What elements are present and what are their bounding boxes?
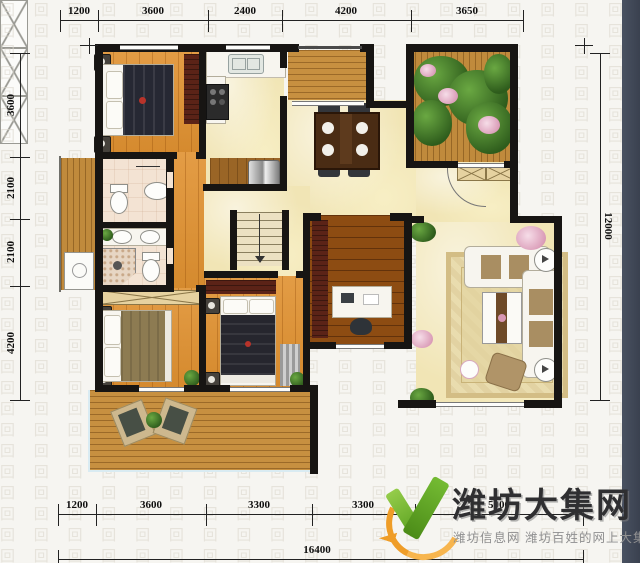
ext-tick bbox=[584, 38, 585, 54]
plate bbox=[356, 144, 368, 156]
dim-label: 2400 bbox=[234, 5, 256, 17]
kitchen-window bbox=[226, 45, 270, 50]
coffee-table-flower bbox=[498, 314, 506, 322]
bedroom3-wardrobe bbox=[206, 280, 276, 294]
wall bbox=[280, 96, 287, 190]
dining-table bbox=[314, 112, 380, 170]
dim-label: 1200 bbox=[66, 499, 88, 511]
corridor-floor bbox=[172, 152, 206, 292]
bedroom2-plant bbox=[184, 370, 200, 386]
terrace-flowers bbox=[420, 64, 436, 77]
bedroom3-blanket-accent bbox=[245, 341, 251, 347]
laundry-balcony-rail bbox=[59, 156, 61, 292]
study-window bbox=[336, 344, 384, 349]
dim-label-total: 16400 bbox=[303, 544, 331, 556]
living-corner-flowers bbox=[516, 226, 546, 250]
dim-label: 3300 bbox=[352, 499, 374, 511]
laptop bbox=[341, 293, 354, 303]
balcony-door bbox=[292, 101, 364, 106]
dim-line-left bbox=[20, 53, 21, 400]
chair-cushion bbox=[162, 405, 189, 434]
dim-tick bbox=[411, 10, 412, 32]
dim-tick bbox=[10, 286, 30, 287]
dim-line-top bbox=[60, 20, 523, 21]
dim-tick bbox=[96, 504, 97, 526]
table-runner bbox=[340, 114, 352, 164]
dim-tick bbox=[58, 550, 59, 563]
bedroom2-pillow bbox=[104, 315, 121, 345]
wall bbox=[303, 213, 321, 221]
study-wardrobe bbox=[312, 220, 328, 338]
washing-machine bbox=[64, 252, 94, 290]
coffee-table bbox=[482, 292, 522, 344]
logo-tagline: 潍坊信息网 潍坊百姓的网上大集 bbox=[453, 527, 640, 546]
watermark-logo: 潍坊大集网 潍坊信息网 潍坊百姓的网上大集 bbox=[384, 470, 640, 562]
wall bbox=[203, 184, 287, 191]
bedroom3-pillow bbox=[249, 299, 274, 314]
wall bbox=[510, 161, 518, 223]
bedroom3-nightstand-top bbox=[204, 298, 220, 314]
bedroom3-sheet bbox=[221, 375, 275, 383]
bedroom2-blanket bbox=[121, 311, 165, 381]
dim-tick bbox=[10, 157, 30, 158]
dim-label: 4200 bbox=[335, 5, 357, 17]
deck-rail-left bbox=[88, 390, 90, 472]
bathroom1-door-gap bbox=[167, 172, 173, 188]
dim-tick bbox=[206, 504, 207, 526]
chair-cushion bbox=[118, 408, 146, 438]
dim-tick bbox=[60, 10, 61, 32]
terrace-plant bbox=[412, 100, 452, 146]
burner bbox=[210, 99, 216, 105]
wall bbox=[410, 216, 424, 223]
dim-label: 1200 bbox=[68, 5, 90, 17]
dim-label: 4200 bbox=[5, 332, 17, 354]
dim-tick bbox=[58, 504, 59, 526]
top-balcony-floor bbox=[288, 50, 370, 104]
wall bbox=[310, 390, 318, 474]
bay-plant bbox=[410, 222, 436, 242]
sofa-cushion bbox=[529, 321, 553, 347]
bedroom1-pillow bbox=[106, 71, 123, 99]
plate bbox=[322, 122, 334, 134]
dim-tick bbox=[10, 219, 30, 220]
ext-tick bbox=[89, 38, 90, 54]
wall bbox=[510, 44, 518, 168]
dim-label: 3600 bbox=[5, 94, 17, 116]
wall bbox=[204, 271, 278, 278]
wall bbox=[524, 400, 562, 408]
ext-tick bbox=[575, 45, 593, 46]
bathroom1-door-arrow bbox=[136, 166, 160, 167]
dim-tick bbox=[208, 10, 209, 32]
wall bbox=[390, 213, 412, 221]
plate bbox=[356, 122, 368, 134]
bedroom3-bed bbox=[220, 296, 276, 386]
wall bbox=[554, 216, 562, 408]
burner bbox=[219, 99, 225, 105]
washer-door bbox=[72, 263, 87, 278]
burner bbox=[219, 89, 225, 95]
kitchen-sink bbox=[228, 54, 264, 74]
wall bbox=[308, 342, 336, 349]
stair-arrow-line bbox=[259, 214, 260, 258]
dim-tick bbox=[10, 400, 30, 401]
deck-plant bbox=[146, 412, 162, 428]
dim-tick bbox=[590, 400, 610, 401]
bedroom3-window bbox=[230, 387, 290, 392]
living-window bbox=[436, 402, 524, 407]
terrace-flowers bbox=[438, 88, 458, 104]
bedroom1-blanket-accent bbox=[139, 97, 146, 104]
burner bbox=[210, 89, 216, 95]
wall bbox=[406, 161, 458, 168]
wall bbox=[230, 210, 237, 270]
living-small-table bbox=[460, 360, 479, 379]
shower-drain bbox=[113, 261, 122, 270]
dim-label: 3650 bbox=[456, 5, 478, 17]
papers bbox=[363, 294, 379, 305]
wall bbox=[366, 44, 374, 108]
dim-tick bbox=[312, 504, 313, 526]
dim-label: 2100 bbox=[5, 177, 17, 199]
dim-tick bbox=[523, 10, 524, 32]
kitchen-sink-bowl bbox=[247, 58, 260, 70]
wall bbox=[199, 285, 206, 392]
bathroom2-sink bbox=[140, 230, 160, 244]
bedroom2-pillow bbox=[104, 347, 121, 377]
toilet bbox=[142, 259, 160, 282]
study-desk bbox=[332, 286, 392, 318]
dim-label: 12000 bbox=[602, 212, 614, 240]
dim-line-right bbox=[600, 53, 601, 400]
side-table-icon bbox=[542, 255, 549, 263]
study-chair bbox=[350, 318, 372, 335]
wall bbox=[282, 210, 289, 270]
deck-rail-bottom bbox=[88, 470, 316, 472]
wall bbox=[199, 44, 206, 159]
dim-tick bbox=[98, 10, 99, 32]
wall bbox=[406, 44, 414, 168]
wall bbox=[95, 285, 173, 292]
entry-gate bbox=[458, 163, 504, 168]
bedroom3-pillow bbox=[223, 299, 248, 314]
bedroom1-blanket bbox=[123, 65, 173, 135]
wall bbox=[398, 400, 436, 408]
plate bbox=[322, 144, 334, 156]
sofa-cushion bbox=[529, 289, 553, 315]
refrigerator bbox=[248, 160, 280, 187]
bathroom2-sink bbox=[112, 230, 132, 244]
bay-flowers bbox=[411, 330, 433, 348]
dim-label: 3600 bbox=[140, 499, 162, 511]
terrace-flowers bbox=[478, 116, 500, 134]
bedroom1-window bbox=[120, 45, 178, 50]
dim-label: 3300 bbox=[248, 499, 270, 511]
wall bbox=[95, 44, 103, 392]
balcony-railing bbox=[298, 46, 362, 49]
bedroom1-pillow bbox=[106, 101, 123, 129]
wall bbox=[404, 216, 412, 349]
sofa-cushion bbox=[481, 255, 501, 279]
floorplan-page: 回 回 回 回 回 回 回 回 回 回 回 回 回 回 回 回 回 回 回 回 … bbox=[0, 0, 640, 563]
wall bbox=[95, 385, 139, 392]
wall bbox=[196, 152, 206, 159]
ext-tick bbox=[80, 45, 98, 46]
bedroom2-closet bbox=[102, 290, 202, 305]
dim-tick bbox=[10, 53, 30, 54]
dim-tick bbox=[282, 10, 283, 32]
stair-arrow-head bbox=[255, 256, 265, 263]
dim-tick bbox=[590, 53, 610, 54]
wall bbox=[95, 152, 177, 159]
bedroom2-bed bbox=[100, 310, 172, 382]
logo-title: 潍坊大集网 bbox=[452, 478, 632, 527]
dim-label: 2100 bbox=[5, 241, 17, 263]
dim-label: 3600 bbox=[142, 5, 164, 17]
wall bbox=[303, 216, 310, 392]
kitchen-stove bbox=[206, 84, 229, 120]
bathroom2-door-gap bbox=[167, 248, 173, 264]
wall bbox=[95, 222, 173, 228]
bedroom2-sheet bbox=[165, 311, 171, 381]
kitchen-sink-bowl bbox=[232, 58, 246, 70]
toilet bbox=[110, 191, 128, 214]
side-table-icon bbox=[542, 365, 549, 373]
bedroom1-bed bbox=[102, 64, 174, 136]
wall bbox=[406, 44, 518, 52]
wall bbox=[184, 385, 230, 392]
wall bbox=[280, 44, 287, 68]
bedroom2-window bbox=[139, 387, 184, 392]
